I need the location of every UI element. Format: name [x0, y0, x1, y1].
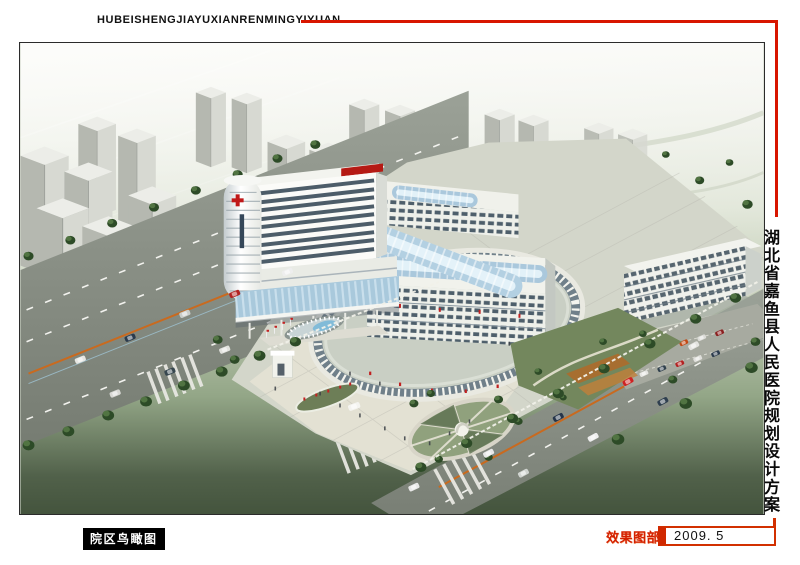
- presentation-board: HUBEISHENGJIAYUXIANRENMINGYIYUAN: [0, 0, 800, 565]
- date-box-tick: [773, 518, 776, 527]
- rendering-frame: [19, 42, 765, 515]
- view-caption: 院区鸟瞰图: [83, 528, 165, 550]
- date-box: 2009. 5: [658, 526, 776, 546]
- aerial-rendering: [20, 43, 764, 514]
- title-rule-vertical: [775, 20, 778, 217]
- vertical-sign: [240, 214, 244, 248]
- side-title: 湖北省嘉鱼县人民医院规划设计方案: [757, 229, 781, 519]
- date-text: 2009. 5: [666, 528, 774, 544]
- title-rule-horizontal: [301, 20, 778, 23]
- gate-kiosk: [271, 351, 295, 378]
